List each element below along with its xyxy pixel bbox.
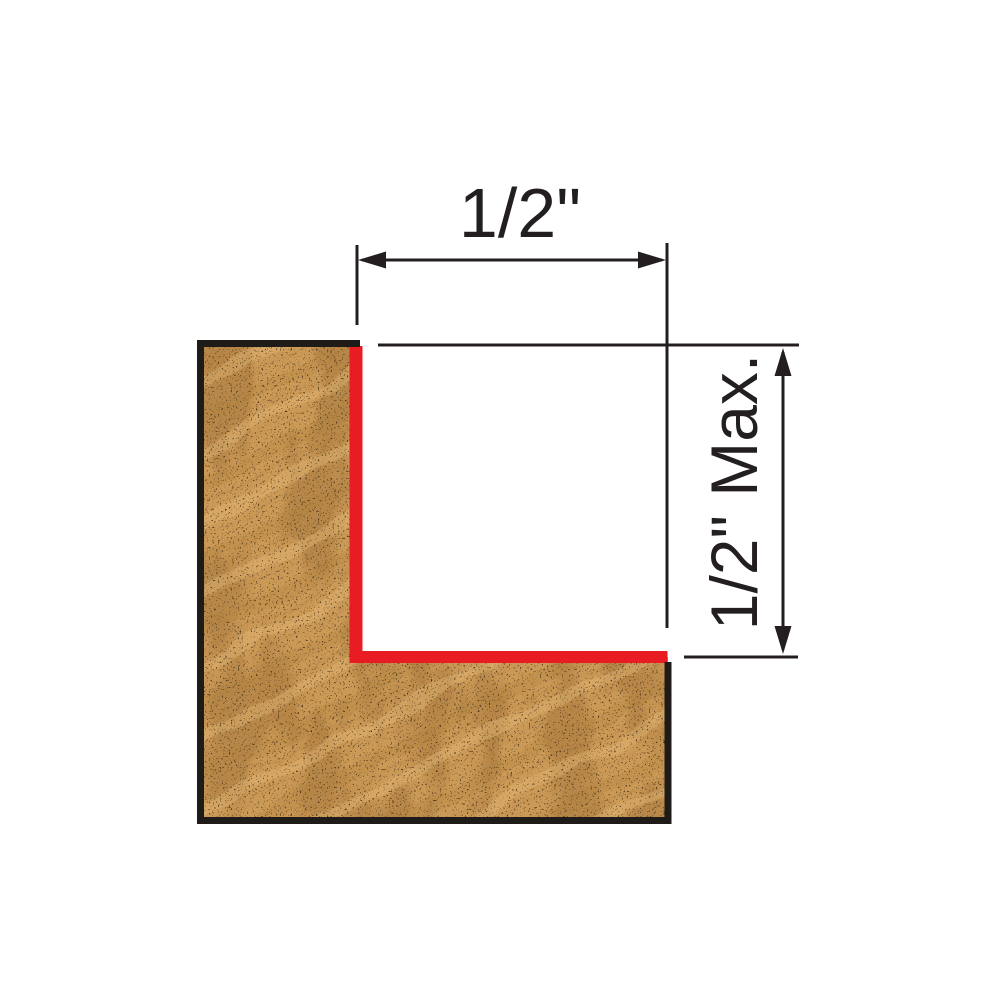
cut-profile-line-horizontal [350,651,668,663]
width-dimension: 1/2" [357,174,667,628]
wood-cross-section [110,250,790,930]
arrowhead-left-icon [358,252,386,269]
rabbet-profile-diagram: 1/2" 1/2" Max. [0,0,1000,1000]
wood-texture [110,250,790,930]
arrowhead-down-icon [775,626,792,654]
width-dimension-label: 1/2" [459,174,581,252]
cut-profile-line-vertical [350,346,363,658]
arrowhead-up-icon [775,348,792,376]
depth-dimension-label: 1/2" Max. [697,354,771,631]
diagram-canvas: 1/2" 1/2" Max. [0,0,1000,1000]
wood-speckles [150,290,730,890]
depth-dimension: 1/2" Max. [378,345,799,657]
arrowhead-right-icon [638,252,666,269]
